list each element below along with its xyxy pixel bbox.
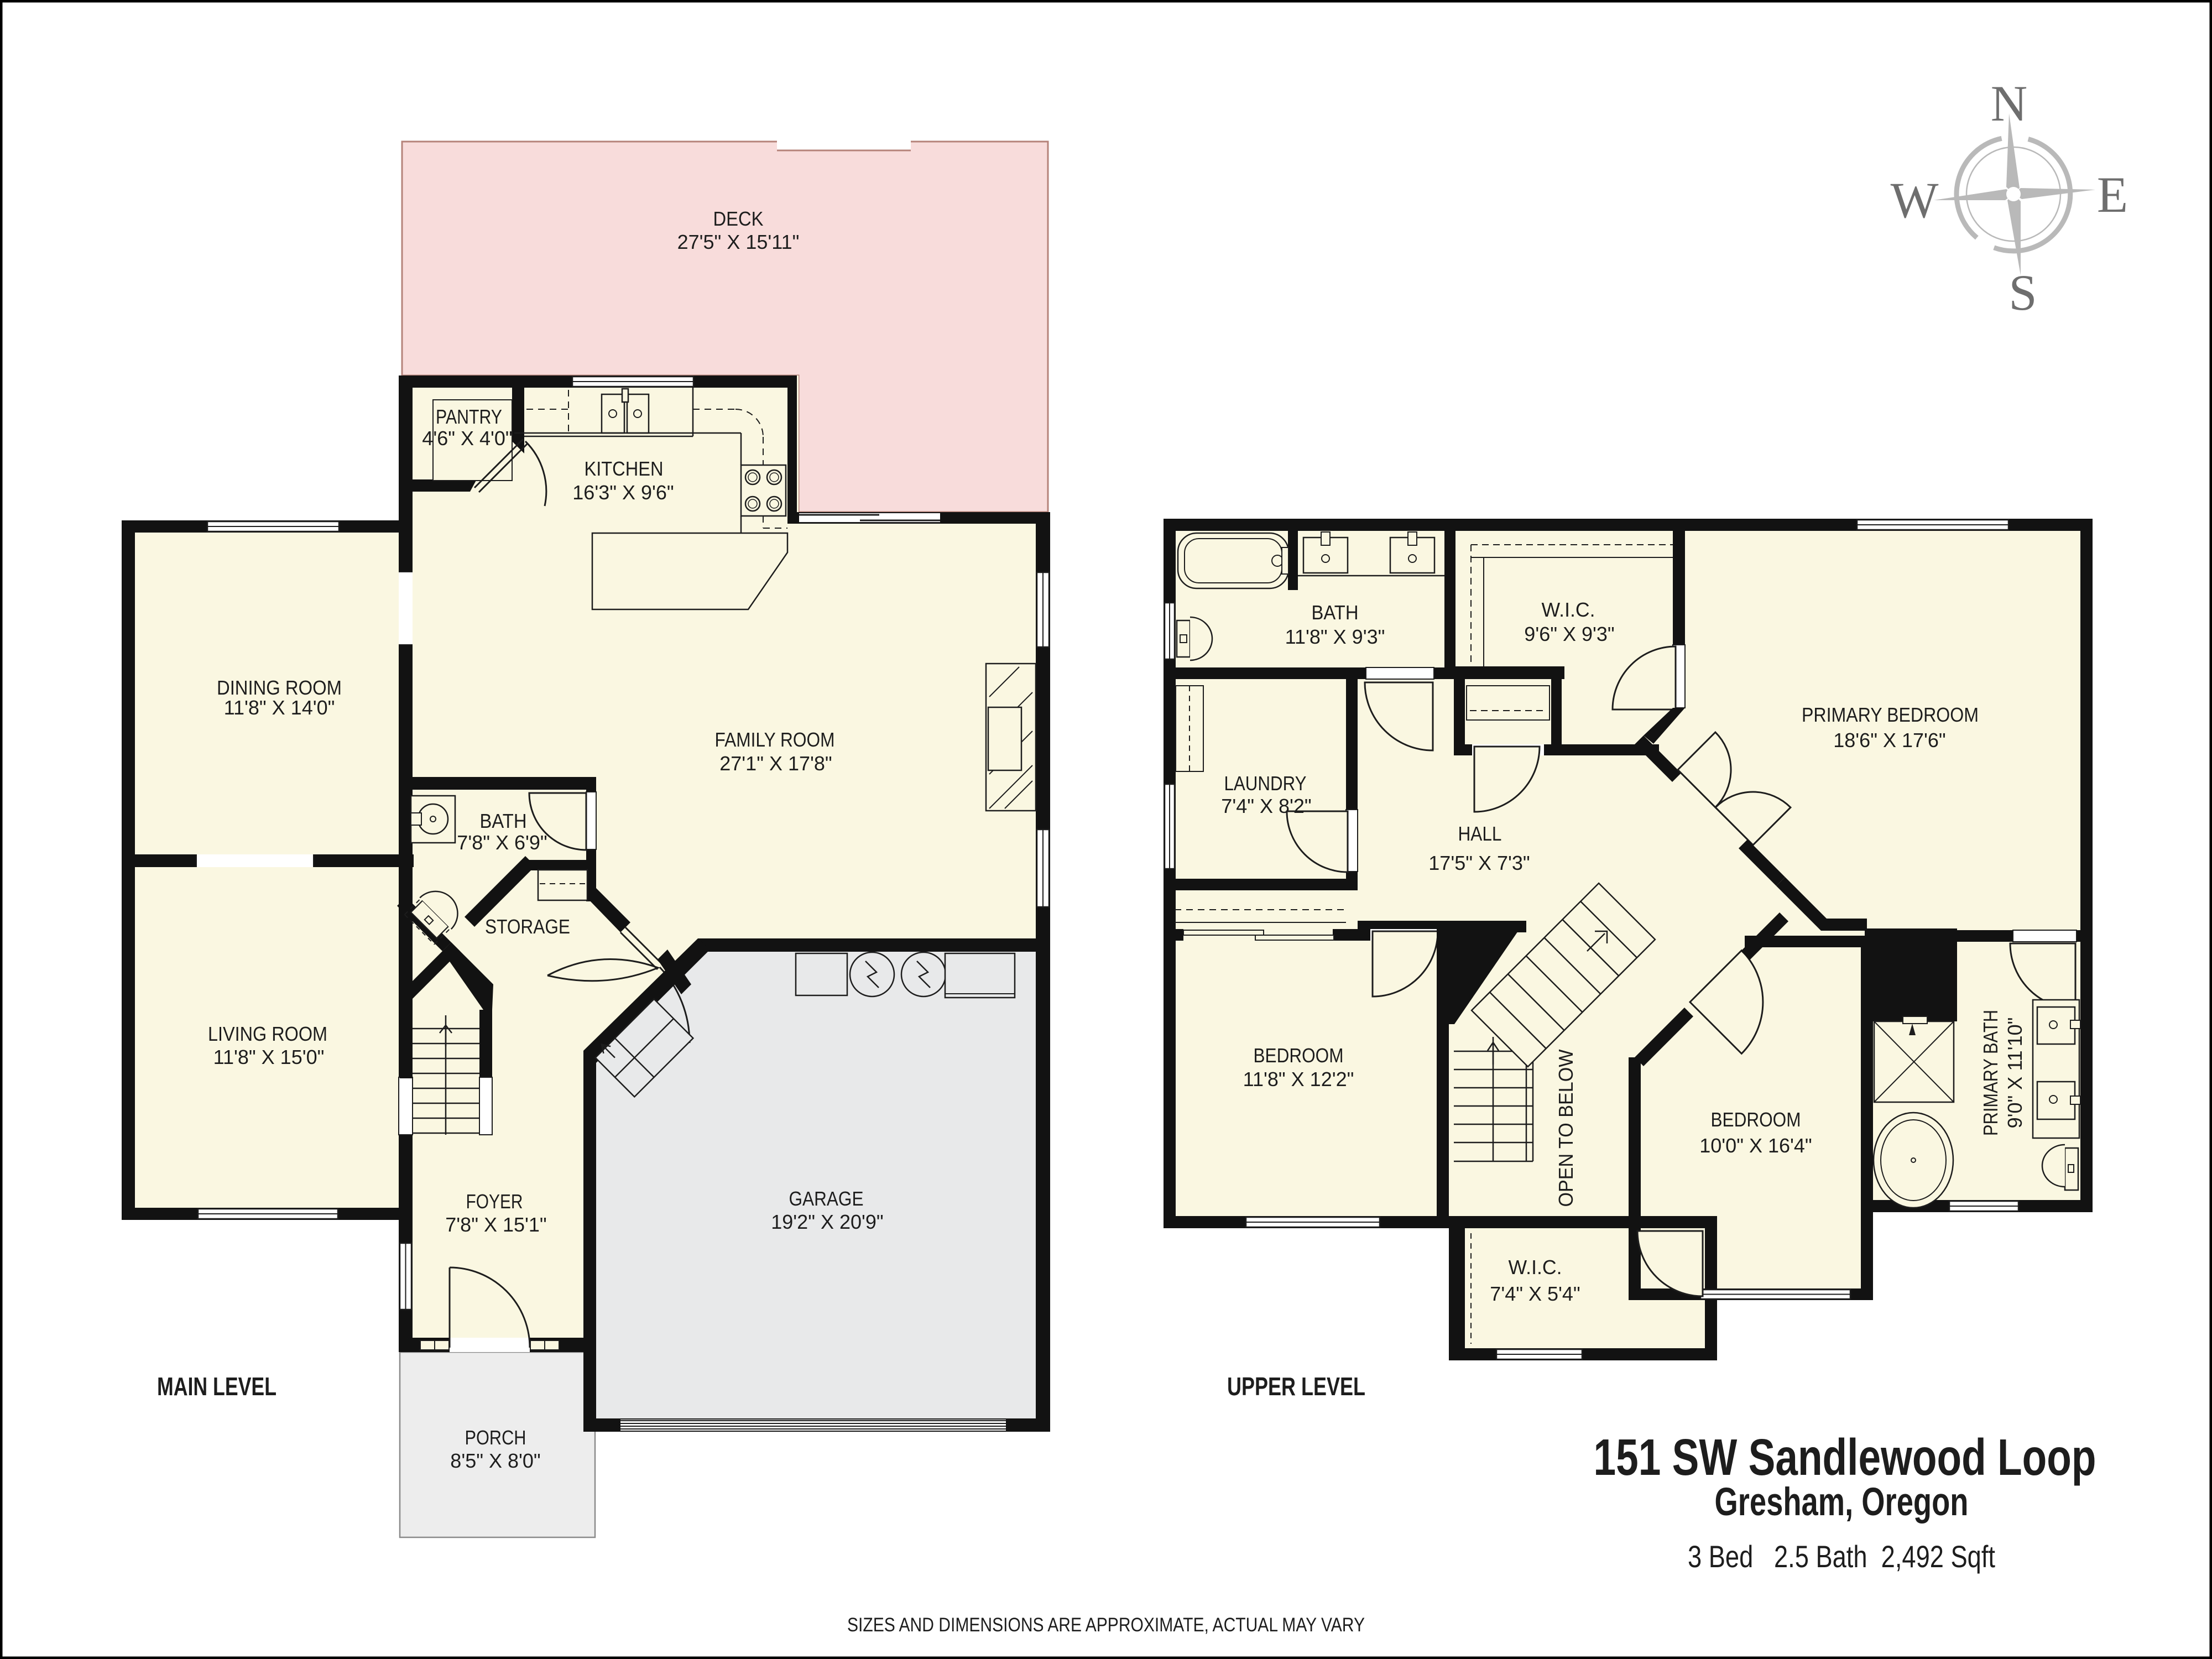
svg-text:OPEN TO BELOW: OPEN TO BELOW [1554, 1049, 1577, 1207]
svg-text:PORCH: PORCH [465, 1426, 526, 1449]
svg-text:DINING ROOM: DINING ROOM [217, 676, 342, 699]
svg-text:LIVING ROOM: LIVING ROOM [208, 1022, 327, 1045]
svg-text:11'8" X 12'2": 11'8" X 12'2" [1243, 1068, 1354, 1091]
svg-text:PRIMARY BEDROOM: PRIMARY BEDROOM [1802, 703, 1979, 726]
svg-text:3 Bed 2.5 Bath 2,492 Sqft: 3 Bed 2.5 Bath 2,492 Sqft [1688, 1539, 1995, 1574]
svg-text:SIZES AND DIMENSIONS ARE APPRO: SIZES AND DIMENSIONS ARE APPROXIMATE, AC… [847, 1614, 1365, 1636]
svg-text:HALL: HALL [1458, 822, 1502, 845]
svg-text:W.I.C.: W.I.C. [1509, 1256, 1562, 1279]
svg-text:10'0" X 16'4": 10'0" X 16'4" [1699, 1134, 1812, 1157]
svg-text:BEDROOM: BEDROOM [1711, 1108, 1801, 1131]
svg-text:Gresham, Oregon: Gresham, Oregon [1715, 1480, 1969, 1524]
svg-text:7'8" X 15'1": 7'8" X 15'1" [445, 1213, 546, 1236]
svg-text:FOYER: FOYER [466, 1190, 523, 1213]
svg-text:BEDROOM: BEDROOM [1254, 1044, 1344, 1067]
svg-text:4'6" X 4'0": 4'6" X 4'0" [422, 427, 512, 450]
svg-text:11'8" X 15'0": 11'8" X 15'0" [213, 1046, 325, 1068]
svg-text:151 SW Sandlewood Loop: 151 SW Sandlewood Loop [1594, 1428, 2096, 1486]
svg-text:27'5" X 15'11": 27'5" X 15'11" [677, 231, 800, 253]
svg-text:FAMILY ROOM: FAMILY ROOM [715, 728, 835, 751]
svg-text:BATH: BATH [1312, 601, 1359, 624]
svg-text:KITCHEN: KITCHEN [585, 457, 664, 480]
svg-text:W.I.C.: W.I.C. [1542, 598, 1595, 621]
svg-text:11'8" X 9'3": 11'8" X 9'3" [1285, 625, 1385, 648]
svg-text:LAUNDRY: LAUNDRY [1224, 772, 1307, 795]
svg-text:MAIN LEVEL: MAIN LEVEL [157, 1372, 276, 1401]
svg-text:16'3" X 9'6": 16'3" X 9'6" [572, 481, 674, 504]
svg-text:S: S [2008, 264, 2037, 321]
svg-text:PRIMARY BATH: PRIMARY BATH [1979, 1010, 2002, 1136]
svg-text:DECK: DECK [713, 207, 764, 230]
svg-text:8'5" X 8'0": 8'5" X 8'0" [450, 1449, 540, 1472]
svg-text:7'4" X 5'4": 7'4" X 5'4" [1490, 1282, 1580, 1305]
svg-text:GARAGE: GARAGE [789, 1187, 864, 1210]
svg-text:PANTRY: PANTRY [436, 405, 502, 428]
svg-text:9'0" X 11'10": 9'0" X 11'10" [2004, 1018, 2026, 1129]
svg-text:W: W [1891, 172, 1939, 228]
svg-text:18'6" X 17'6": 18'6" X 17'6" [1833, 729, 1945, 752]
svg-text:7'8" X 6'9": 7'8" X 6'9" [457, 831, 547, 854]
svg-text:N: N [1991, 75, 2027, 132]
svg-text:UPPER LEVEL: UPPER LEVEL [1227, 1372, 1365, 1401]
svg-text:9'6" X 9'3": 9'6" X 9'3" [1524, 623, 1614, 645]
svg-text:19'2" X 20'9": 19'2" X 20'9" [771, 1211, 883, 1233]
svg-text:BATH: BATH [480, 810, 527, 832]
svg-text:11'8" X 14'0": 11'8" X 14'0" [224, 696, 335, 719]
svg-text:STORAGE: STORAGE [485, 915, 570, 938]
svg-text:27'1" X 17'8": 27'1" X 17'8" [719, 752, 832, 775]
svg-text:7'4" X 8'2": 7'4" X 8'2" [1221, 795, 1311, 817]
svg-text:E: E [2097, 166, 2128, 223]
svg-text:17'5" X 7'3": 17'5" X 7'3" [1428, 852, 1530, 874]
